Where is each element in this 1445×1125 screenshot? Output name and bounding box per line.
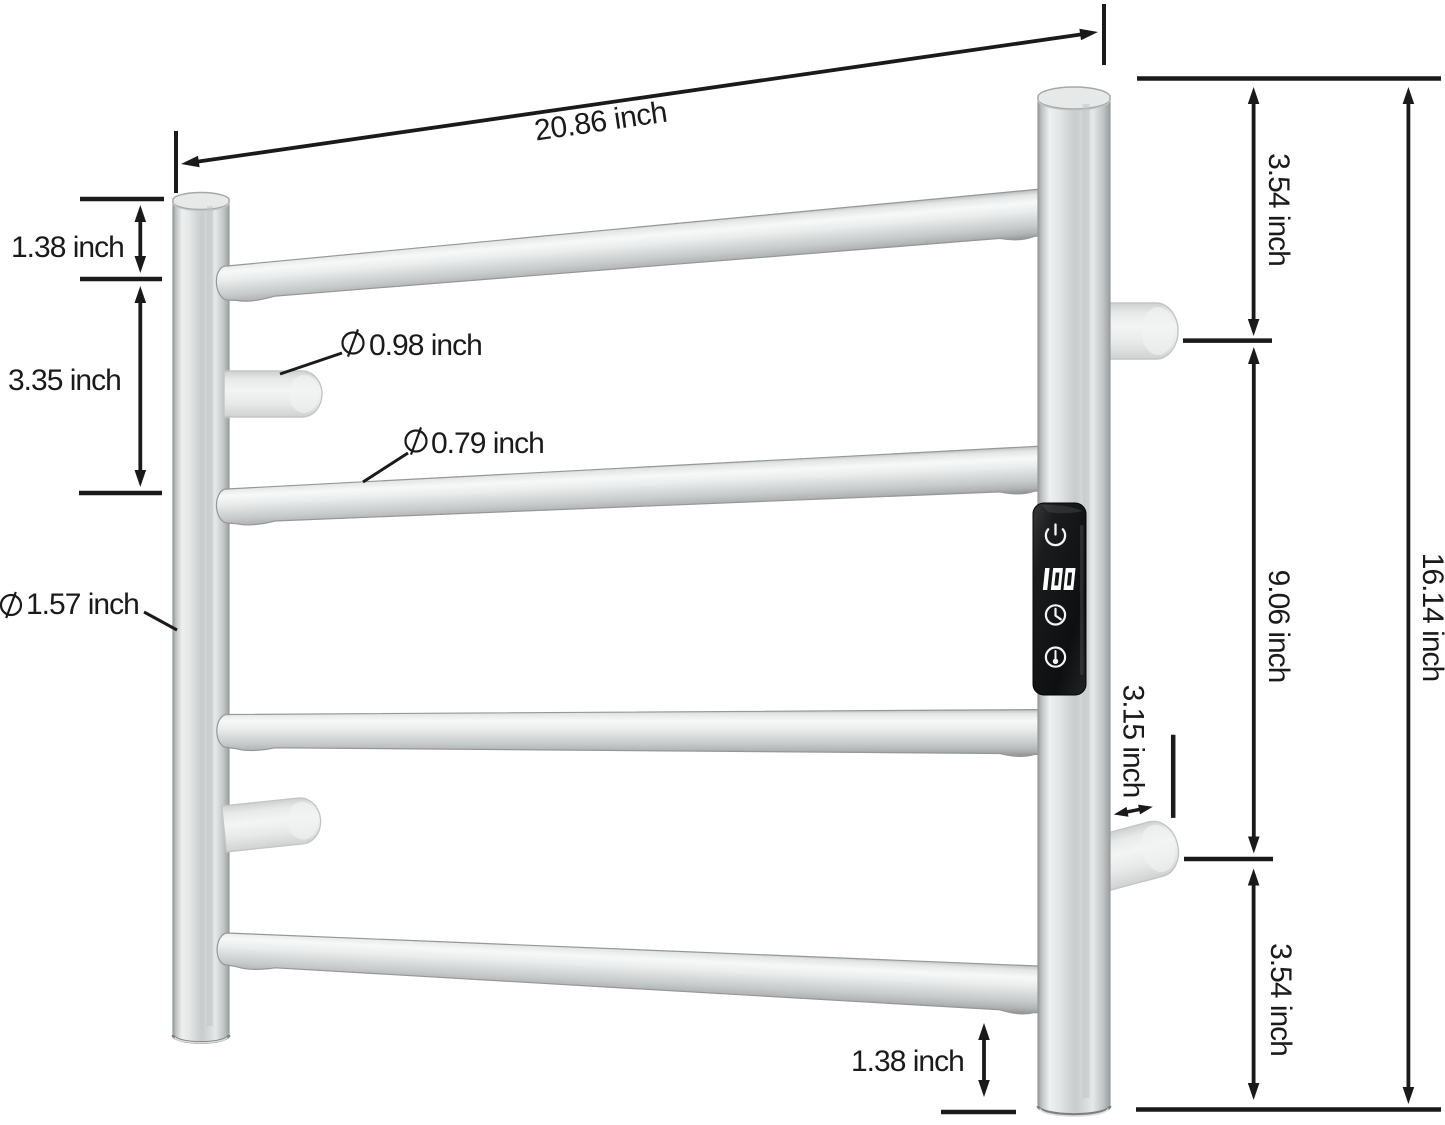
svg-text:0.98 inch: 0.98 inch <box>369 329 482 362</box>
svg-text:1.38 inch: 1.38 inch <box>11 231 124 264</box>
svg-text:1.57 inch: 1.57 inch <box>26 588 139 621</box>
svg-text:3.54 inch: 3.54 inch <box>1262 153 1295 266</box>
svg-text:3.54 inch: 3.54 inch <box>1264 943 1297 1056</box>
svg-text:9.06 inch: 9.06 inch <box>1262 570 1295 683</box>
svg-text:1.38 inch: 1.38 inch <box>851 1045 964 1078</box>
svg-text:3.15 inch: 3.15 inch <box>1117 685 1150 798</box>
svg-text:16.14 inch: 16.14 inch <box>1416 553 1445 681</box>
svg-text:3.35 inch: 3.35 inch <box>8 364 121 397</box>
svg-text:0.79 inch: 0.79 inch <box>431 427 544 460</box>
